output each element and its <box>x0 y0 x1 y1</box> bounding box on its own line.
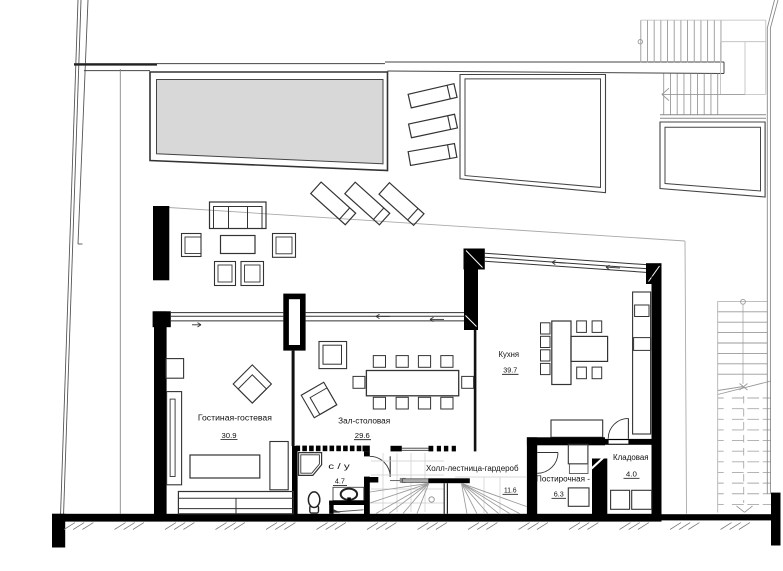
svg-text:Постирочная -: Постирочная - <box>536 475 590 484</box>
svg-text:Холл-лестница-гардероб: Холл-лестница-гардероб <box>426 464 519 473</box>
svg-text:30.9: 30.9 <box>222 431 237 440</box>
svg-text:Зал-столовая: Зал-столовая <box>338 417 390 426</box>
svg-text:Кухня: Кухня <box>499 350 520 359</box>
svg-text:Кладовая: Кладовая <box>613 453 649 462</box>
svg-text:Гостиная-гостевая: Гостиная-гостевая <box>198 414 272 423</box>
svg-text:29.6: 29.6 <box>355 431 370 440</box>
svg-text:4.0: 4.0 <box>626 469 637 478</box>
svg-text:4.7: 4.7 <box>335 477 345 486</box>
svg-text:39.7: 39.7 <box>503 365 517 374</box>
svg-text:6.3: 6.3 <box>554 489 564 498</box>
svg-text:11.6: 11.6 <box>504 485 517 494</box>
svg-text:с / у: с / у <box>328 462 350 471</box>
